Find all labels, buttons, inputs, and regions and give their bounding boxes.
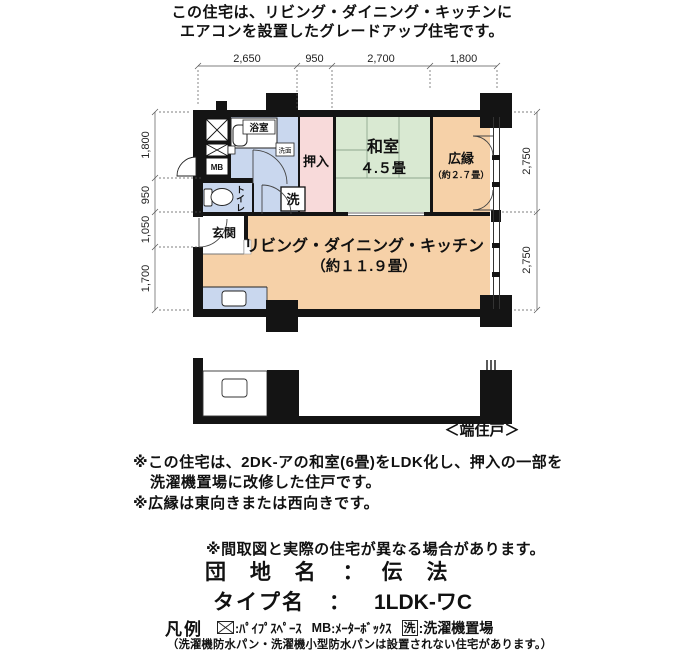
sink-icon (222, 291, 246, 306)
pipe-space-icon (206, 119, 228, 156)
toilet-label: トイレ (235, 185, 245, 212)
entrance-label: 玄関 (212, 225, 236, 240)
dim-right-1: 2,750 (521, 147, 533, 175)
dim-top-1: 2,650 (233, 53, 261, 65)
wall-ldk-top-right (424, 212, 490, 216)
bath-label: 浴室 (249, 122, 269, 134)
dim-top-2: 950 (305, 53, 323, 65)
neighbor-ticks (487, 360, 495, 370)
note2: ※広縁は東向きまたは西向きです。 (133, 492, 379, 513)
note1-line1: ※この住宅は、2DK-アの和室(6畳)をLDK化し、押入の一部を (133, 451, 563, 472)
dim-left-2: 950 (140, 186, 152, 204)
dim-left-1: 1,800 (140, 131, 152, 159)
wall-toilet-top (203, 178, 253, 183)
dim-ext-right (502, 112, 535, 310)
unit-type-value: 1LDK-ワC (374, 591, 472, 614)
wall-entrance-right (244, 216, 248, 240)
wall-toilet-right (252, 183, 254, 212)
neighbor-unit (193, 358, 512, 424)
legend-mb: MB:ﾒｰﾀｰﾎﾞｯｸｽ (312, 618, 392, 637)
dim-ext-top (198, 70, 497, 108)
wall-left-lower (193, 247, 203, 317)
wall-closet-washitsu (333, 117, 336, 212)
neighbor-column-mid (267, 370, 299, 416)
estate-label: 団 地 名 (205, 561, 325, 584)
washbasin-label: 洗面 (279, 146, 293, 155)
dim-left-4: 1,700 (140, 265, 152, 293)
floorplan-page: { "header": { "line1": "この住宅は、リビング・ダイニング… (0, 0, 700, 650)
legend-pipe-space-desc: :ﾊﾟｲﾌﾟｽﾍﾟｰｽ (235, 618, 302, 637)
legend-pipe-space: :ﾊﾟｲﾌﾟｽﾍﾟｰｽ (217, 618, 302, 637)
fusuma-doors (348, 213, 424, 216)
japanese-room-label: 和室 (367, 137, 399, 156)
legend-mb-label: MB (312, 621, 331, 635)
legend-laundry: 洗:洗濯機置場 (402, 618, 494, 638)
column-bottom-mid (266, 300, 298, 332)
unit-type-row: タイプ名：1LDK-ワC (213, 586, 472, 616)
unit-position-label: ＜端住戸＞ (444, 421, 519, 439)
dim-left-3: 1,050 (140, 216, 152, 244)
ldk-label: リビング・ダイニング・キッチン (244, 236, 484, 255)
estate-value: 伝 法 (382, 561, 457, 584)
column-bump (216, 101, 227, 110)
wall-top (193, 110, 512, 117)
estate-separator: ： (343, 561, 364, 584)
legend-laundry-desc: :洗濯機置場 (419, 618, 494, 638)
veranda-label: 広縁 (448, 151, 474, 166)
wall-ldk-top-left (203, 212, 348, 216)
unit-type-label: タイプ名 (213, 591, 305, 614)
estate-name-row: 団 地 名：伝 法 (205, 556, 457, 586)
dim-right-2: 2,750 (521, 246, 533, 274)
column-top-mid (266, 93, 298, 117)
wall-washitsu-veranda (430, 117, 433, 212)
pipe-space-icon (217, 621, 234, 634)
unit-type-separator: ： (329, 591, 350, 614)
veranda-size: （約２.７畳） (433, 169, 490, 180)
ldk-size: （約１１.９畳） (311, 257, 417, 275)
column-bottom-right (480, 295, 512, 327)
wall-bottom (193, 309, 512, 317)
dim-top-4: 1,800 (450, 53, 478, 65)
mb-label: MB (211, 163, 224, 172)
mb-door-swing (177, 157, 196, 176)
column-top-right (480, 93, 512, 128)
shower-icon (228, 146, 235, 154)
legend-mb-desc: :ﾒｰﾀｰﾎﾞｯｸｽ (331, 618, 391, 637)
toilet-icon (204, 189, 233, 207)
note1-line2: 洗濯機置場に改修した住戸です。 (150, 471, 381, 492)
legend-laundry-icon: 洗 (402, 620, 418, 636)
laundry-label: 洗 (286, 192, 299, 207)
closet-label: 押入 (303, 154, 329, 169)
neighbor-sink-icon (222, 379, 247, 397)
japanese-room-size: ４.５畳 (360, 160, 406, 176)
neighbor-column-right (480, 370, 512, 416)
dim-top-3: 2,700 (367, 53, 395, 65)
